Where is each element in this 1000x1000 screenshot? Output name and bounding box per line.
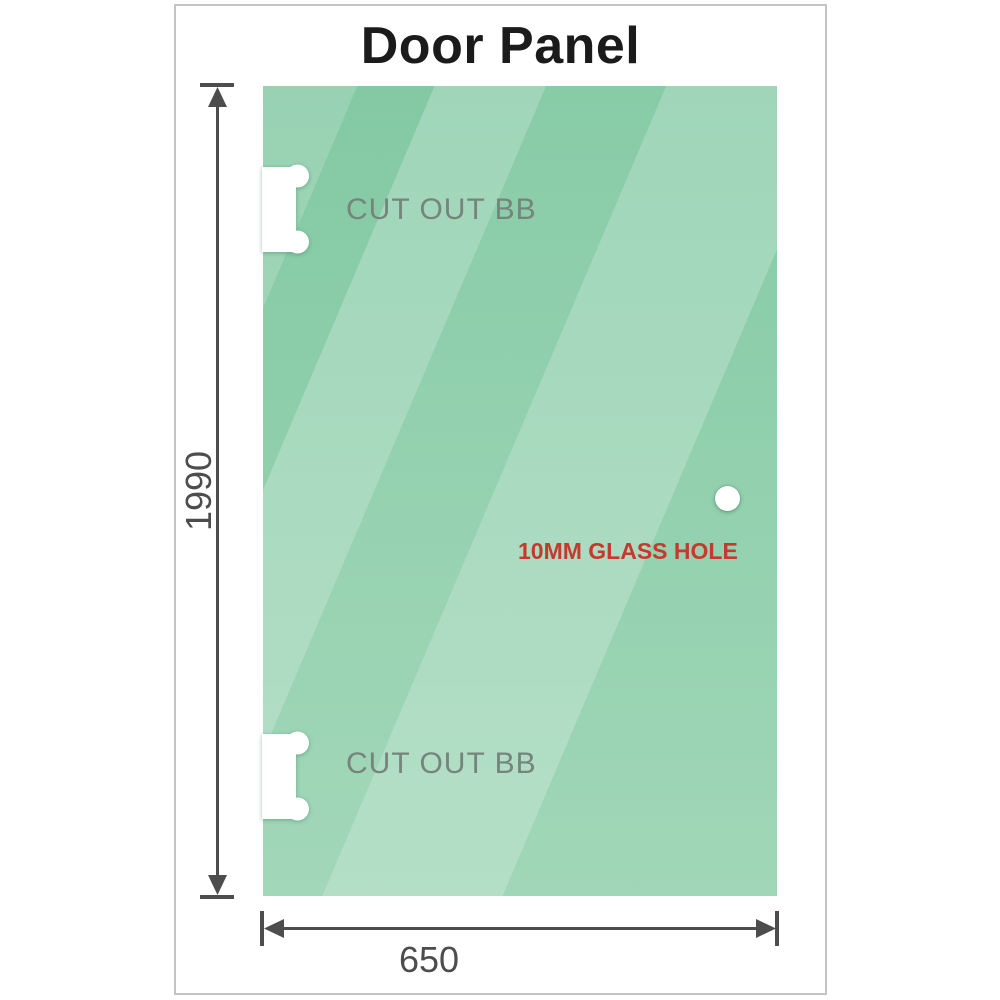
hinge-cutout-top bbox=[259, 161, 311, 257]
height-dimension-label: 1990 bbox=[175, 431, 223, 551]
width-dimension-label: 650 bbox=[369, 939, 489, 981]
glass-hole-label: 10MM GLASS HOLE bbox=[518, 538, 738, 565]
page-title: Door Panel bbox=[174, 16, 827, 76]
glass-hole bbox=[715, 486, 740, 511]
cutout-drill-hole-top bbox=[286, 732, 309, 755]
hinge-cutout-bottom bbox=[259, 728, 311, 824]
diagram-canvas: Door Panel CUT OUT BB CUT OUT BB 10MM GL… bbox=[0, 0, 1000, 1000]
cutout-drill-hole-top bbox=[286, 165, 309, 188]
cutout-top-label: CUT OUT BB bbox=[346, 193, 606, 227]
cutout-drill-hole-bottom bbox=[286, 231, 309, 254]
cutout-drill-hole-bottom bbox=[286, 798, 309, 821]
cutout-bottom-label: CUT OUT BB bbox=[346, 747, 606, 781]
